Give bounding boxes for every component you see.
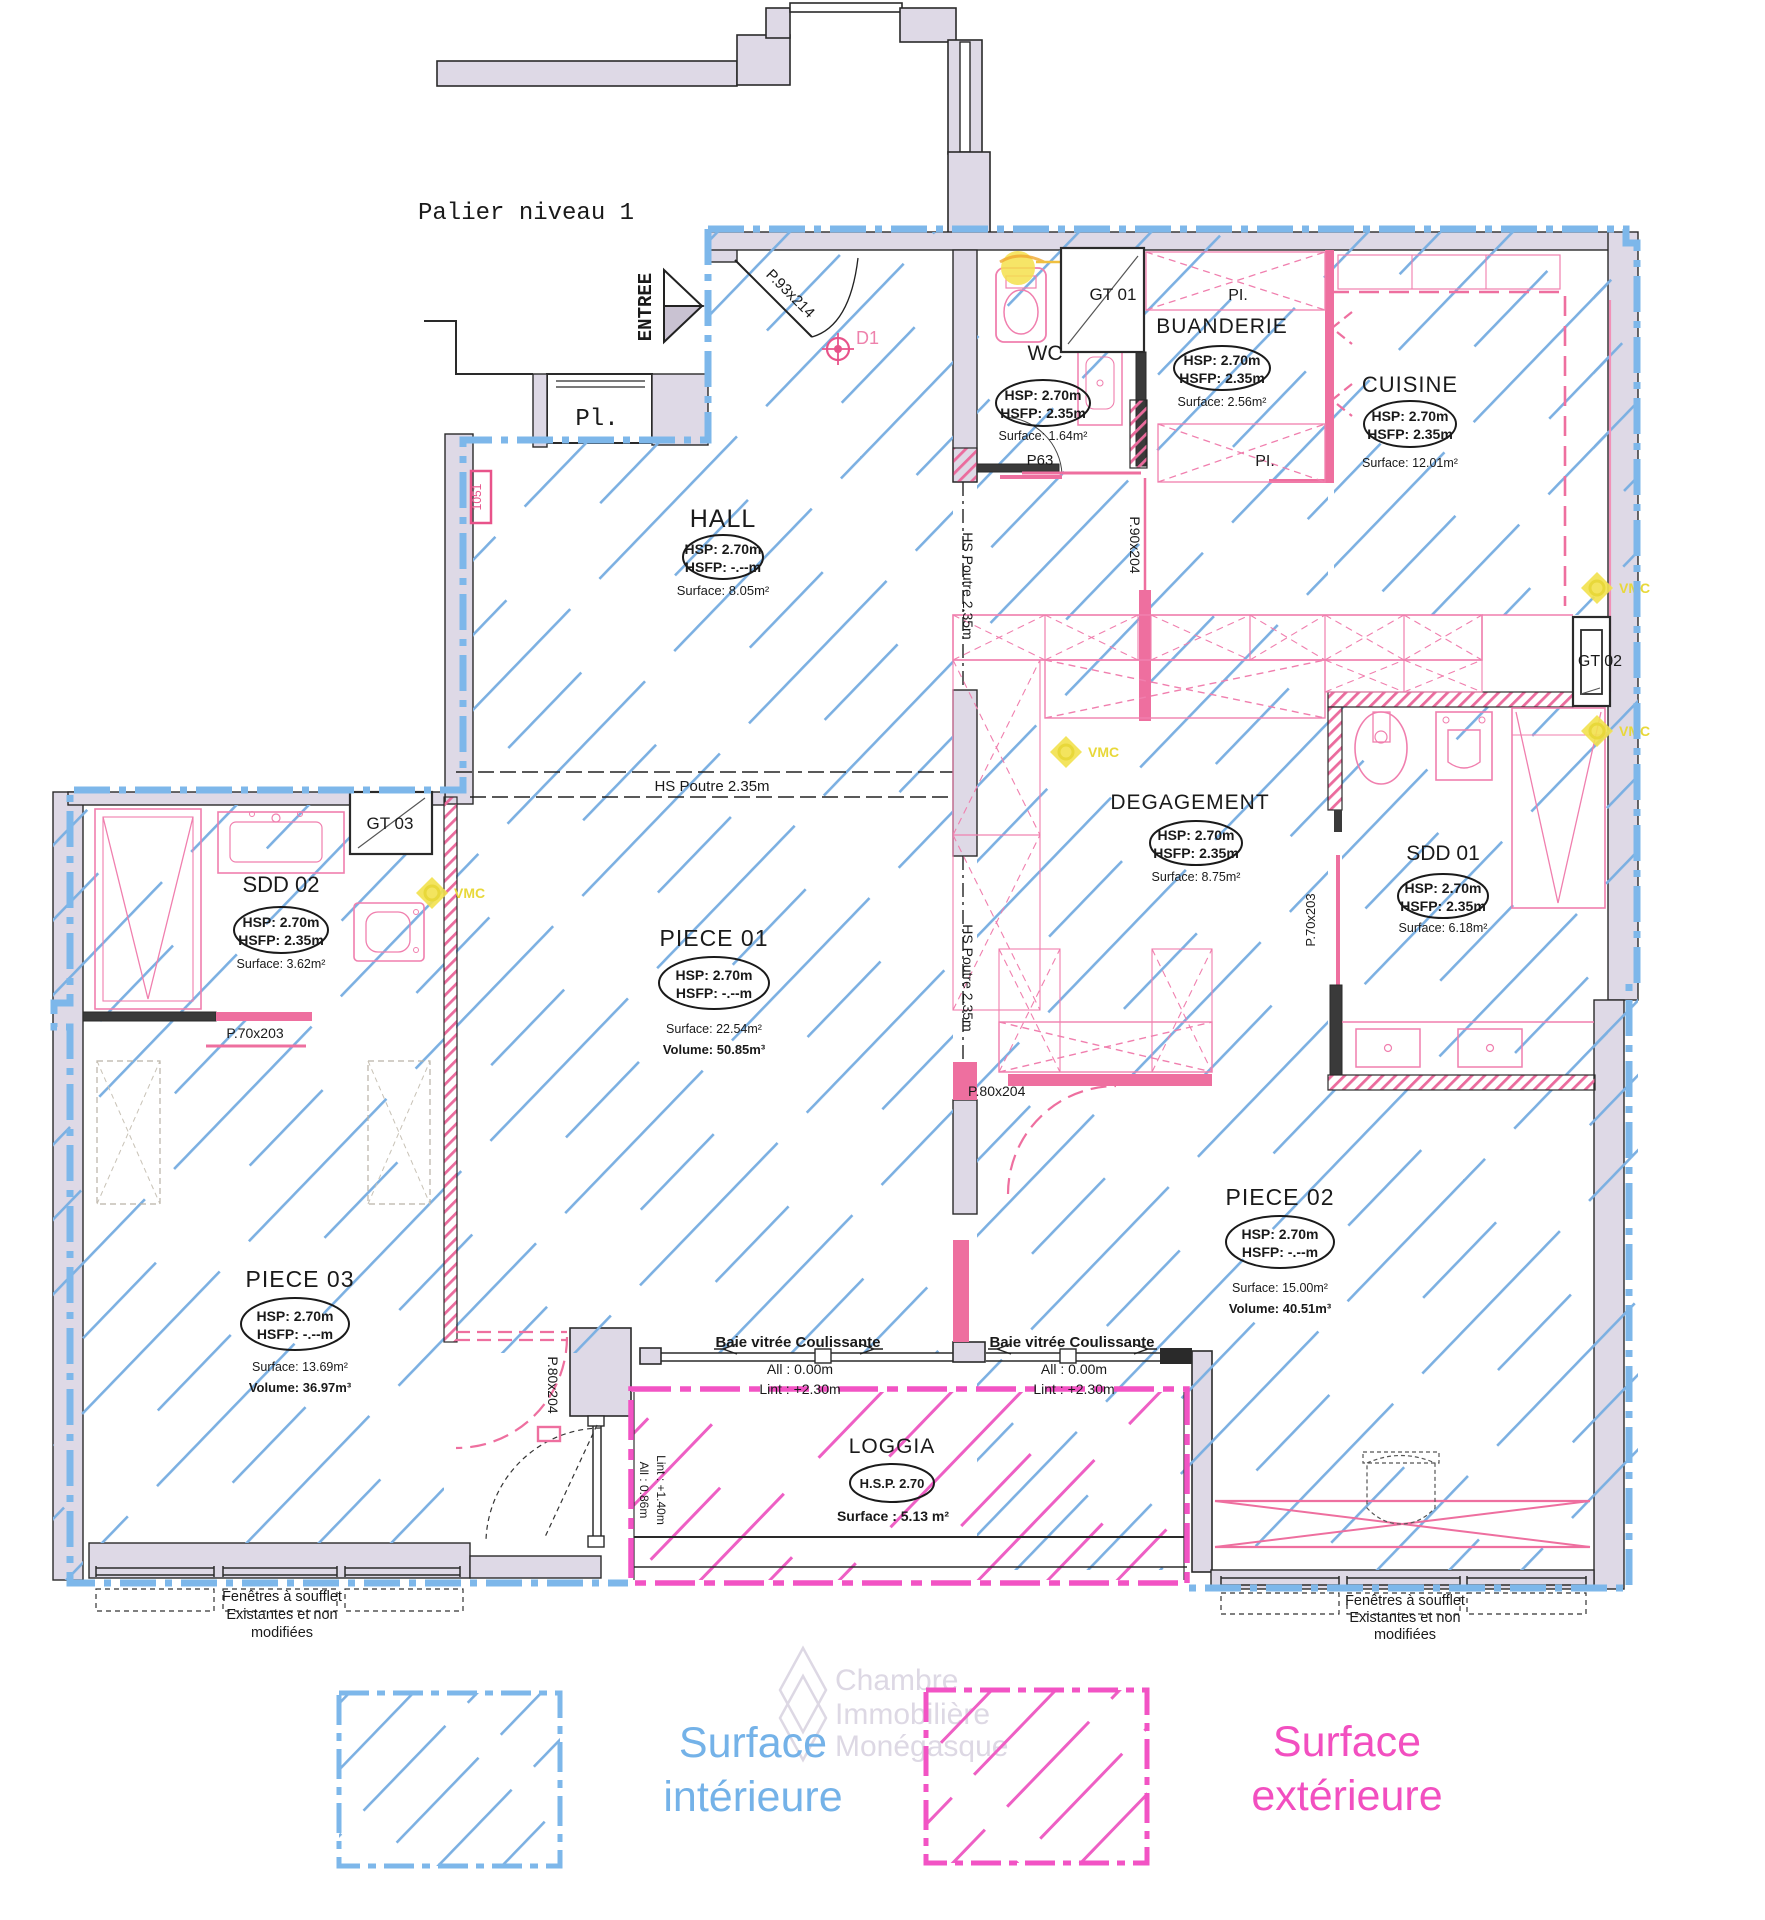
svg-text:HSFP: 2.35m: HSFP: 2.35m <box>1153 845 1239 861</box>
svg-text:Volume: 36.97m³: Volume: 36.97m³ <box>249 1380 352 1395</box>
svg-text:Surface: Surface <box>1273 1718 1421 1766</box>
svg-text:PIECE 03: PIECE 03 <box>246 1266 355 1292</box>
svg-text:P.80x204: P.80x204 <box>545 1356 561 1414</box>
svg-text:Existantes et non: Existantes et non <box>226 1607 337 1623</box>
svg-text:Lint : +2.30m: Lint : +2.30m <box>759 1381 840 1397</box>
svg-text:D1: D1 <box>856 328 879 348</box>
svg-text:Lint : +2.30m: Lint : +2.30m <box>1033 1381 1114 1397</box>
svg-text:modifiées: modifiées <box>1374 1627 1436 1643</box>
svg-text:P.70x203: P.70x203 <box>226 1025 284 1041</box>
svg-text:Surface: 12.01m²: Surface: 12.01m² <box>1362 456 1458 470</box>
svg-text:HSFP: -.--m: HSFP: -.--m <box>676 985 752 1001</box>
svg-text:All : 0.00m: All : 0.00m <box>767 1361 833 1377</box>
svg-text:P63: P63 <box>1027 452 1054 469</box>
svg-text:HSP: 2.70m: HSP: 2.70m <box>1404 880 1481 896</box>
svg-text:P.90x204: P.90x204 <box>1127 516 1143 574</box>
svg-text:PIECE 02: PIECE 02 <box>1226 1184 1335 1210</box>
svg-text:PIECE 01: PIECE 01 <box>660 925 769 951</box>
svg-text:Fenêtres à soufflet: Fenêtres à soufflet <box>1345 1593 1465 1609</box>
svg-text:GT 01: GT 01 <box>1090 285 1137 304</box>
svg-text:HSP: 2.70m: HSP: 2.70m <box>1157 827 1234 843</box>
svg-text:Surface: 13.69m²: Surface: 13.69m² <box>252 1360 348 1374</box>
svg-text:HSFP: -.--m: HSFP: -.--m <box>1242 1244 1318 1260</box>
svg-text:Surface: 6.18m²: Surface: 6.18m² <box>1399 921 1488 935</box>
svg-text:Baie vitrée Coulissante: Baie vitrée Coulissante <box>989 1334 1154 1351</box>
svg-text:All : 0.86m: All : 0.86m <box>637 1462 651 1519</box>
svg-text:Surface: 22.54m²: Surface: 22.54m² <box>666 1022 762 1036</box>
svg-text:modifiées: modifiées <box>251 1625 313 1641</box>
svg-text:HS Poutre 2.35m: HS Poutre 2.35m <box>960 532 976 639</box>
svg-text:VMC: VMC <box>1088 744 1119 760</box>
svg-text:Surface: 1.64m²: Surface: 1.64m² <box>999 429 1088 443</box>
svg-text:HS Poutre 2.35m: HS Poutre 2.35m <box>654 778 769 795</box>
svg-text:HSFP: 2.35m: HSFP: 2.35m <box>238 932 324 948</box>
svg-text:HSFP: -.--m: HSFP: -.--m <box>685 559 761 575</box>
svg-text:HSP: 2.70m: HSP: 2.70m <box>1371 408 1448 424</box>
svg-text:HSFP: -.--m: HSFP: -.--m <box>257 1326 333 1342</box>
svg-text:Lint : +1.40m: Lint : +1.40m <box>654 1455 668 1525</box>
svg-text:Volume: 50.85m³: Volume: 50.85m³ <box>663 1042 766 1057</box>
svg-text:HALL: HALL <box>690 505 757 533</box>
svg-text:HSP: 2.70m: HSP: 2.70m <box>242 914 319 930</box>
svg-text:Surface: Surface <box>679 1719 827 1767</box>
svg-text:PI.: PI. <box>1228 287 1248 304</box>
svg-text:HSP: 2.70m: HSP: 2.70m <box>1241 1226 1318 1242</box>
svg-text:HSP: 2.70m: HSP: 2.70m <box>1004 387 1081 403</box>
svg-text:BUANDERIE: BUANDERIE <box>1156 315 1288 338</box>
svg-text:HSFP: 2.35m: HSFP: 2.35m <box>1400 898 1486 914</box>
svg-text:Surface: 3.62m²: Surface: 3.62m² <box>237 957 326 971</box>
svg-text:ENTREE: ENTREE <box>635 273 657 341</box>
svg-text:Surface: 2.56m²: Surface: 2.56m² <box>1178 395 1267 409</box>
svg-text:CUISINE: CUISINE <box>1362 372 1458 397</box>
svg-text:DEGAGEMENT: DEGAGEMENT <box>1110 791 1269 814</box>
svg-text:Surface: 8.75m²: Surface: 8.75m² <box>1152 870 1241 884</box>
svg-text:HSFP: 2.35m: HSFP: 2.35m <box>1367 426 1453 442</box>
svg-text:HSFP: 2.35m: HSFP: 2.35m <box>1179 370 1265 386</box>
svg-text:Existantes et non: Existantes et non <box>1349 1610 1460 1626</box>
svg-text:P.70x203: P.70x203 <box>1303 893 1318 946</box>
svg-text:HS Poutre 2.35m: HS Poutre 2.35m <box>960 924 976 1031</box>
svg-text:HSP: 2.70m: HSP: 2.70m <box>256 1308 333 1324</box>
svg-text:HSP: 2.70m: HSP: 2.70m <box>1183 352 1260 368</box>
svg-text:Surface: 15.00m²: Surface: 15.00m² <box>1232 1281 1328 1295</box>
svg-text:Surface : 5.13 m²: Surface : 5.13 m² <box>837 1508 949 1524</box>
svg-text:VMC: VMC <box>454 885 485 901</box>
svg-text:All : 0.00m: All : 0.00m <box>1041 1361 1107 1377</box>
svg-text:GT 02: GT 02 <box>1578 653 1622 670</box>
svg-text:GT 03: GT 03 <box>367 814 414 833</box>
svg-text:Palier niveau 1: Palier niveau 1 <box>418 200 634 227</box>
svg-text:HSFP: 2.35m: HSFP: 2.35m <box>1000 405 1086 421</box>
svg-text:LOGGIA: LOGGIA <box>849 1435 936 1458</box>
svg-text:SDD 02: SDD 02 <box>242 872 319 897</box>
svg-text:extérieure: extérieure <box>1251 1772 1442 1820</box>
svg-text:Baie vitrée Coulissante: Baie vitrée Coulissante <box>715 1334 880 1351</box>
svg-text:PI.: PI. <box>1255 453 1275 470</box>
svg-text:Surface: 8.05m²: Surface: 8.05m² <box>677 583 770 598</box>
svg-text:SDD 01: SDD 01 <box>1406 842 1480 865</box>
svg-text:Fenêtres à soufflet: Fenêtres à soufflet <box>222 1589 342 1605</box>
svg-text:Pl.: Pl. <box>575 406 618 433</box>
svg-text:HSP: 2.70m: HSP: 2.70m <box>684 541 761 557</box>
svg-text:HSP: 2.70m: HSP: 2.70m <box>675 967 752 983</box>
svg-text:WC: WC <box>1028 342 1063 365</box>
svg-text:1051: 1051 <box>470 483 484 510</box>
svg-text:Volume: 40.51m³: Volume: 40.51m³ <box>1229 1301 1332 1316</box>
svg-text:P.80x204: P.80x204 <box>968 1083 1026 1099</box>
svg-text:H.S.P. 2.70: H.S.P. 2.70 <box>860 1476 925 1491</box>
svg-text:intérieure: intérieure <box>663 1773 842 1821</box>
